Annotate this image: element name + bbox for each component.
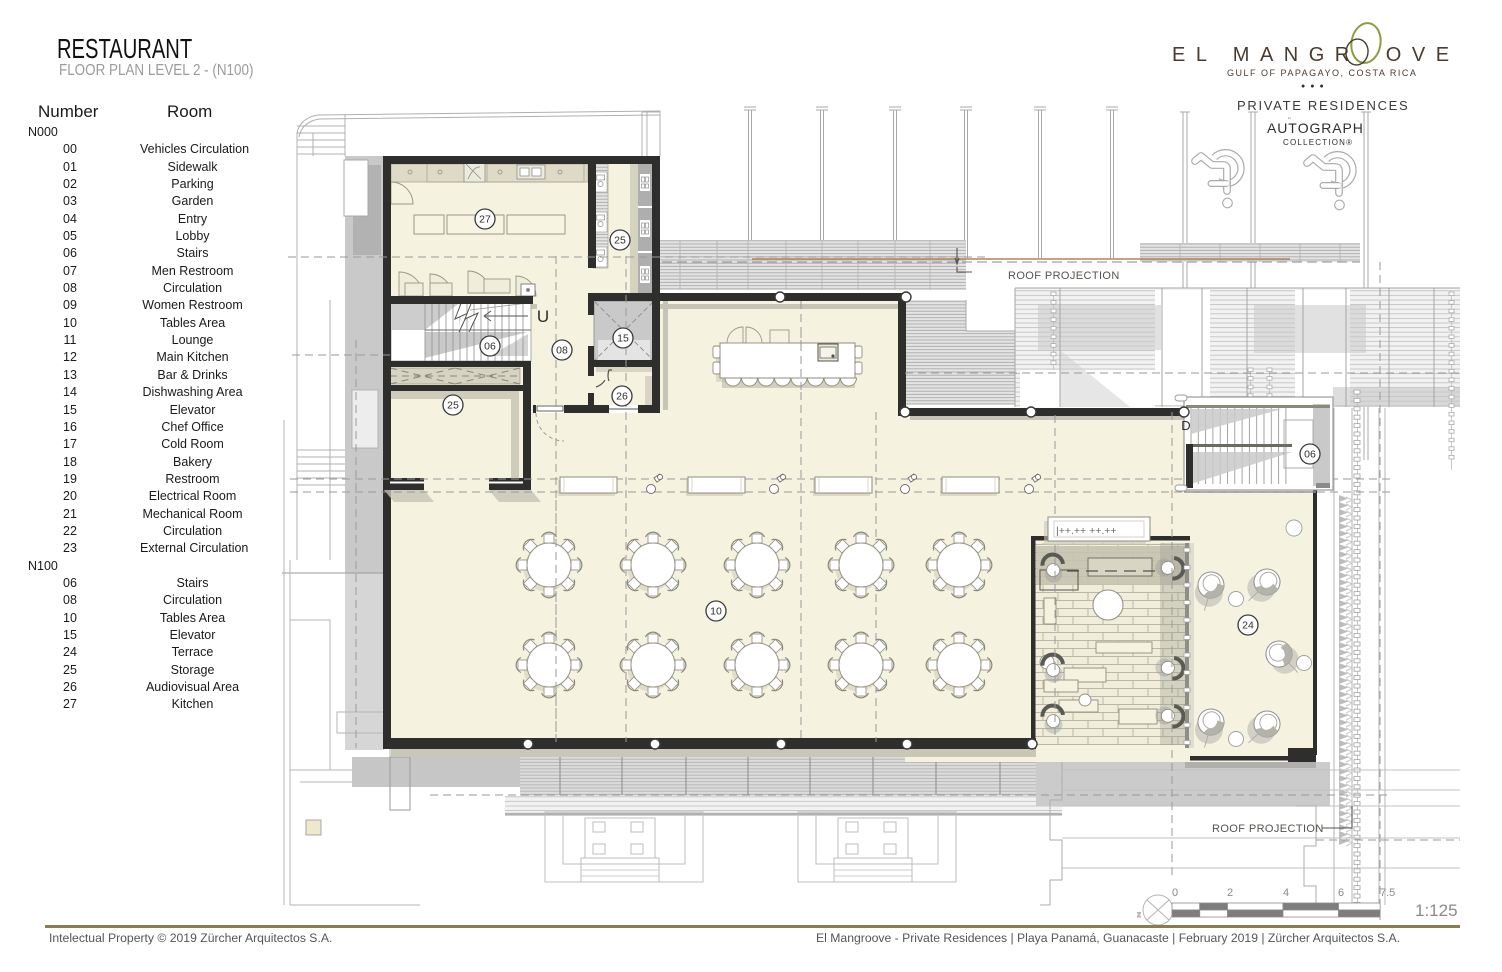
svg-text:6: 6 xyxy=(1338,887,1344,899)
svg-text:10: 10 xyxy=(710,606,722,618)
svg-text:U: U xyxy=(537,307,549,326)
svg-text:06: 06 xyxy=(484,341,496,353)
svg-text:0: 0 xyxy=(1172,887,1178,899)
svg-text:4: 4 xyxy=(1283,887,1289,899)
svg-text:26: 26 xyxy=(616,391,628,403)
svg-text:08: 08 xyxy=(556,345,568,357)
svg-text:ROOF PROJECTION: ROOF PROJECTION xyxy=(1008,270,1120,282)
svg-text:ROOF PROJECTION: ROOF PROJECTION xyxy=(1212,823,1324,835)
svg-text:2: 2 xyxy=(1227,887,1233,899)
svg-text:06: 06 xyxy=(1304,449,1316,461)
svg-text:25: 25 xyxy=(447,400,459,412)
svg-text:z: z xyxy=(1137,910,1141,919)
svg-text:|++.++ ++.++: |++.++ ++.++ xyxy=(1056,525,1117,537)
svg-text:7.5: 7.5 xyxy=(1380,887,1395,899)
svg-text:15: 15 xyxy=(617,333,629,345)
svg-text:25: 25 xyxy=(614,235,626,247)
svg-text:1:125: 1:125 xyxy=(1415,901,1458,920)
svg-text:D: D xyxy=(1181,418,1190,433)
svg-text:24: 24 xyxy=(1242,620,1254,632)
svg-text:27: 27 xyxy=(479,214,491,226)
